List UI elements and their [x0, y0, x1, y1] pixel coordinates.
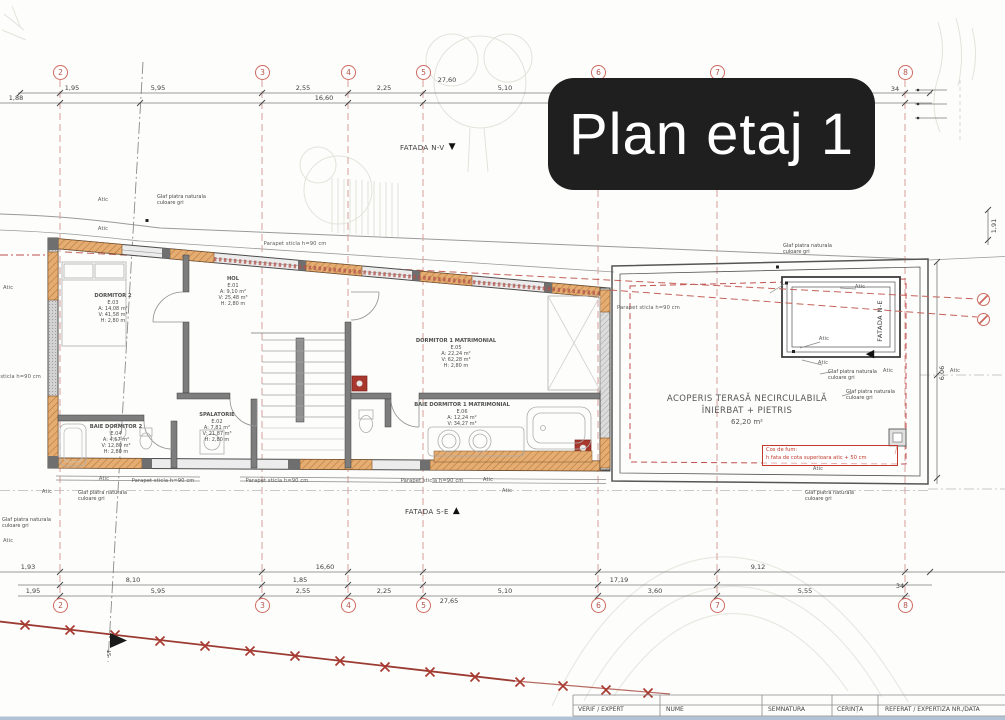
chimney-note-line2: h fata de cota superioara atic + 50 cm — [766, 455, 867, 461]
grid-bubble-bottom-3: 3 — [255, 598, 270, 613]
room-name: SPALATORIE — [199, 412, 234, 419]
parapet-label: Parapet sticla h=90 cm — [246, 478, 309, 484]
room-height: H: 2,80 m — [218, 301, 247, 307]
glaf-label: culoare gri — [846, 395, 873, 401]
dim-label: 3,60 — [648, 587, 662, 595]
table-header-cerinta: CERINȚA — [837, 706, 863, 713]
grid-bubble-bottom-2: 2 — [53, 598, 68, 613]
dim-label: 5,95 — [151, 587, 165, 595]
glaf-label: culoare gri — [2, 523, 29, 529]
parapet-label: Parapet sticla h=90 cm — [264, 241, 327, 247]
parapet-label: Parapet sticla h=90 cm — [132, 478, 195, 484]
grid-bubble-top-4: 4 — [341, 65, 356, 80]
dim-label: 2,55 — [296, 587, 310, 595]
glaf-label: culoare gri — [805, 496, 832, 502]
room-height: H: 2,80 m — [90, 449, 142, 455]
room-height: H: 2,80 m — [199, 437, 234, 443]
dim-label: 5,95 — [151, 84, 165, 92]
grid-bubble-bottom-4: 4 — [341, 598, 356, 613]
dim-label: 34 — [891, 85, 899, 93]
terrace-title: ACOPERIS TERASĂ NECIRCULABILĂ — [667, 394, 827, 404]
dim-label: 17,19 — [610, 576, 629, 584]
room-label-hol: HOL E.01 A: 9,10 m² V: 25,48 m³ H: 2,80 … — [218, 276, 247, 308]
grid-bubble-top-3: 3 — [255, 65, 270, 80]
room-label-spalatorie: SPALATORIE E.02 A: 7,81 m² V: 21,87 m³ H… — [199, 412, 234, 444]
parapet-label: Parapet sticla h=90 cm — [617, 305, 680, 311]
atic-label: Atic — [883, 368, 893, 374]
dim-label: 34 — [896, 582, 904, 590]
facade-up-triangle-icon: ▲ — [453, 507, 460, 516]
grid-bubble-bottom-5: 5 — [416, 598, 431, 613]
atic-label: Atic — [98, 226, 108, 232]
atic-label: Atic — [3, 285, 13, 291]
room-label-baie-dormitor2: BAIE DORMITOR 2 E.04 A: 4,57 m² V: 12,80… — [90, 424, 142, 456]
facade-down-triangle-icon: ▼ — [449, 143, 456, 152]
grid-bubble-bottom-7: 7 — [710, 598, 725, 613]
facade-nv-label: FATADA N-V — [400, 144, 445, 152]
terrace-area: 62,20 m² — [731, 418, 763, 426]
dim-label: 5,10 — [498, 587, 512, 595]
parapet-label: Parapet sticla h=90 cm — [0, 374, 41, 380]
dim-label: 5,55 — [798, 587, 812, 595]
facade-left-triangle-icon: ◀ — [866, 348, 874, 359]
facade-nv-marker: FATADA N-V ▼ — [400, 143, 456, 152]
room-name: DORMITOR 1 MATRIMONIAL — [416, 338, 496, 345]
facade-ne-label: FATADA N-E — [876, 300, 884, 342]
dim-label: 16,60 — [315, 94, 334, 102]
room-name: BAIE DORMITOR 1 MATRIMONIAL — [414, 402, 510, 409]
st-boundary-label: ST — [107, 650, 113, 656]
bottom-edge-strip — [0, 717, 1005, 720]
dim-label: 27,65 — [440, 597, 459, 605]
atic-label: Atic — [813, 466, 823, 472]
facade-se-marker: FATADA S-E ▲ — [405, 507, 460, 516]
table-header-referat: REFERAT / EXPERTIZA NR./DATA — [885, 706, 980, 713]
grid-bubble-bottom-6: 6 — [591, 598, 606, 613]
dim-label: 1,95 — [26, 587, 40, 595]
atic-label: Atic — [483, 477, 493, 483]
atic-label: Atic — [819, 336, 829, 342]
dim-label: 1,91 — [990, 219, 998, 233]
dim-label: 1,88 — [9, 94, 23, 102]
room-name: BAIE DORMITOR 2 — [90, 424, 142, 431]
dim-label: 2,25 — [377, 587, 391, 595]
table-header-nume: NUME — [666, 706, 684, 713]
atic-label: Atic — [99, 476, 109, 482]
facade-se-label: FATADA S-E — [405, 508, 449, 516]
atic-label: Atic — [855, 284, 865, 290]
dim-label: 1,93 — [21, 563, 35, 571]
dim-label: 16,60 — [316, 563, 335, 571]
room-label-dormitor2: DORMITOR 2 E.03 A: 14,08 m² V: 41,58 m³ … — [94, 293, 131, 325]
site-boundary — [0, 214, 1005, 272]
glaf-label: culoare gri — [828, 375, 855, 381]
grid-bubble-top-2: 2 — [53, 65, 68, 80]
fence-boundary-line — [0, 621, 670, 698]
atic-label: Atic — [818, 360, 828, 366]
dim-label: 2,55 — [296, 84, 310, 92]
plan-title: Plan etaj 1 — [569, 101, 854, 168]
chimney-note-line1: Cos de fum: — [766, 447, 797, 453]
parapet-label: Parapet sticla h=90 cm — [401, 478, 464, 484]
dim-label: 2,25 — [377, 84, 391, 92]
dim-label: 5,10 — [498, 84, 512, 92]
table-header-verif: VERIF / EXPERT — [578, 706, 624, 713]
dim-label: 6,06 — [938, 366, 946, 380]
glaf-label: culoare gri — [783, 249, 810, 255]
glaf-label: culoare gri — [157, 200, 184, 206]
atic-label: Atic — [950, 368, 960, 374]
room-label-dormitor1: DORMITOR 1 MATRIMONIAL E.05 A: 22,24 m² … — [416, 338, 496, 370]
grid-bubble-top-5: 5 — [416, 65, 431, 80]
dim-label: 1,95 — [65, 84, 79, 92]
room-name: DORMITOR 2 — [94, 293, 131, 300]
atic-label: Atic — [98, 197, 108, 203]
grid-bubble-top-8: 8 — [898, 65, 913, 80]
room-height: H: 2,80 m — [94, 318, 131, 324]
atic-label: Atic — [42, 489, 52, 495]
bench-masonry — [434, 451, 592, 462]
level-marker-icon — [977, 293, 990, 306]
plan-title-card: Plan etaj 1 — [548, 78, 875, 190]
dim-label: 8,10 — [126, 576, 140, 584]
dim-label: 9,12 — [751, 563, 765, 571]
floor-plan-screenshot: 2 3 4 5 6 7 8 2 3 4 5 6 7 8 1,95 5,95 2,… — [0, 0, 1005, 720]
room-height: H: 2,80 m — [416, 363, 496, 369]
room-volume: V: 34,27 m³ — [414, 421, 510, 427]
grid-bubble-bottom-8: 8 — [898, 598, 913, 613]
room-label-baie-dormitor1: BAIE DORMITOR 1 MATRIMONIAL E.06 A: 12,2… — [414, 402, 510, 427]
level-marker-icon — [977, 313, 990, 326]
atic-label: Atic — [502, 488, 512, 494]
dim-label: 1,85 — [293, 576, 307, 584]
glaf-label: culoare gri — [78, 496, 105, 502]
dim-label: 27,60 — [438, 76, 457, 84]
atic-label: Atic — [3, 538, 13, 544]
table-header-semnatura: SEMNATURA — [768, 706, 805, 713]
terrace-subtitle: ÎNIERBAT + PIETRIS — [702, 406, 793, 416]
